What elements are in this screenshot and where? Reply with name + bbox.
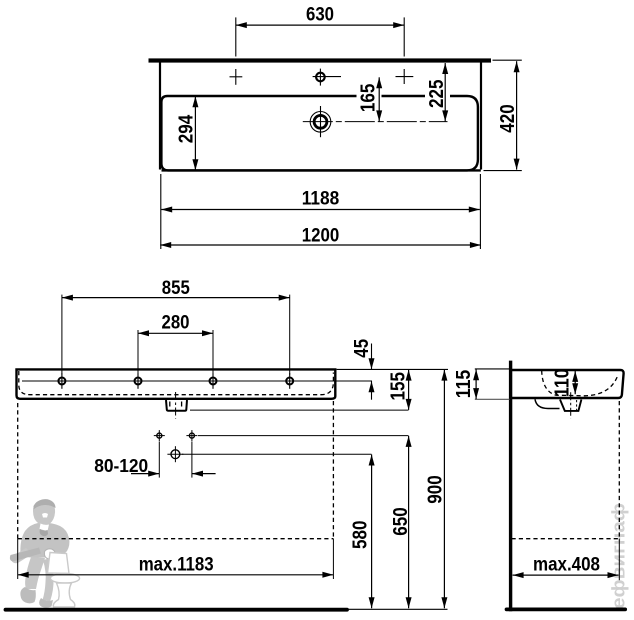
svg-text:165: 165 bbox=[357, 84, 380, 113]
svg-text:1200: 1200 bbox=[302, 225, 340, 246]
svg-text:855: 855 bbox=[162, 278, 190, 299]
svg-text:630: 630 bbox=[306, 5, 334, 26]
svg-text:115: 115 bbox=[452, 370, 475, 399]
svg-text:ефвигнаф: ефвигнаф bbox=[609, 503, 629, 609]
svg-text:225: 225 bbox=[425, 80, 448, 109]
svg-text:45: 45 bbox=[350, 339, 373, 358]
svg-text:1188: 1188 bbox=[302, 189, 340, 210]
svg-text:max.408: max.408 bbox=[533, 555, 600, 576]
svg-text:580: 580 bbox=[349, 521, 372, 550]
svg-text:294: 294 bbox=[174, 114, 197, 143]
svg-text:max.1183: max.1183 bbox=[139, 555, 214, 576]
svg-text:110: 110 bbox=[551, 368, 574, 397]
svg-text:420: 420 bbox=[496, 104, 519, 133]
svg-text:280: 280 bbox=[162, 312, 190, 333]
svg-text:80-120: 80-120 bbox=[94, 455, 148, 476]
svg-text:900: 900 bbox=[423, 475, 446, 504]
svg-text:155: 155 bbox=[387, 372, 410, 401]
svg-text:650: 650 bbox=[389, 507, 412, 536]
